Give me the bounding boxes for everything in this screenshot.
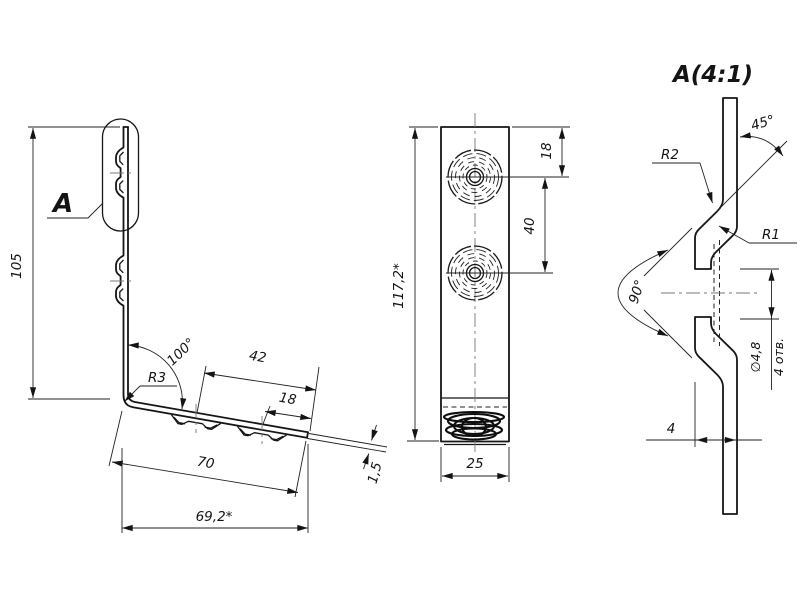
side-inner-profile: [128, 127, 308, 432]
dim-r1: R1: [762, 227, 780, 243]
side-view: A 105 100° R3 42 18 70 69,2* 1,5: [9, 119, 387, 533]
detail-section-upper: [695, 98, 737, 269]
dim-42-line: [204, 373, 316, 390]
detail-view: A(4:1) 45° R2 R1 90° ∅4,8 4 отв.: [618, 62, 797, 514]
dim-90: 90°: [626, 278, 649, 306]
dim-4: 4: [667, 421, 676, 437]
dimple-centerlines: [110, 173, 262, 444]
dim-45-arc: [740, 136, 783, 156]
dim-45: 45°: [749, 112, 776, 134]
dim-r3: R3: [148, 370, 166, 386]
r2-leader: [700, 163, 713, 203]
ext-dia: [740, 269, 779, 319]
dim-15-arrow-top: [372, 425, 377, 441]
r1-leader: [719, 226, 749, 243]
dim-40: 40: [522, 217, 538, 234]
detail-title: A(4:1): [671, 62, 753, 88]
ext-45-diagonal: [700, 141, 787, 228]
side-outer-profile: [116, 127, 307, 438]
dim-dia: ∅4,8: [748, 342, 763, 373]
dim-18-side-line: [265, 412, 311, 419]
side-tip-edge: [307, 432, 308, 438]
r3-leader: [125, 386, 141, 402]
detail-section-lower: [695, 317, 737, 514]
ext-18-side: [263, 406, 270, 424]
dim-105: 105: [9, 253, 25, 279]
front-bent-leg-dimples: [444, 412, 504, 440]
dim-18-front: 18: [539, 142, 555, 159]
ext-105: [28, 127, 120, 399]
ext-117: [407, 127, 439, 441]
engineering-drawing-sheet: A 105 100° R3 42 18 70 69,2* 1,5: [0, 0, 800, 600]
dim-18-side: 18: [278, 390, 298, 409]
front-view: 117,2* 18 40 25: [391, 113, 570, 482]
dim-hole-count: 4 отв.: [771, 338, 786, 376]
dim-100: 100°: [164, 335, 199, 369]
dim-117-2: 117,2*: [391, 263, 407, 309]
dim-25: 25: [466, 456, 483, 472]
dim-15: 1,5: [365, 461, 386, 486]
dim-42: 42: [248, 348, 268, 367]
dim-70: 70: [196, 454, 216, 473]
ext-thickness: [308, 434, 388, 453]
dim-r2: R2: [661, 147, 679, 163]
dim-69-2: 69,2*: [196, 509, 233, 525]
callout-letter: A: [51, 189, 73, 219]
drawing-canvas: A 105 100° R3 42 18 70 69,2* 1,5: [0, 0, 800, 600]
ext-70: [109, 411, 306, 497]
